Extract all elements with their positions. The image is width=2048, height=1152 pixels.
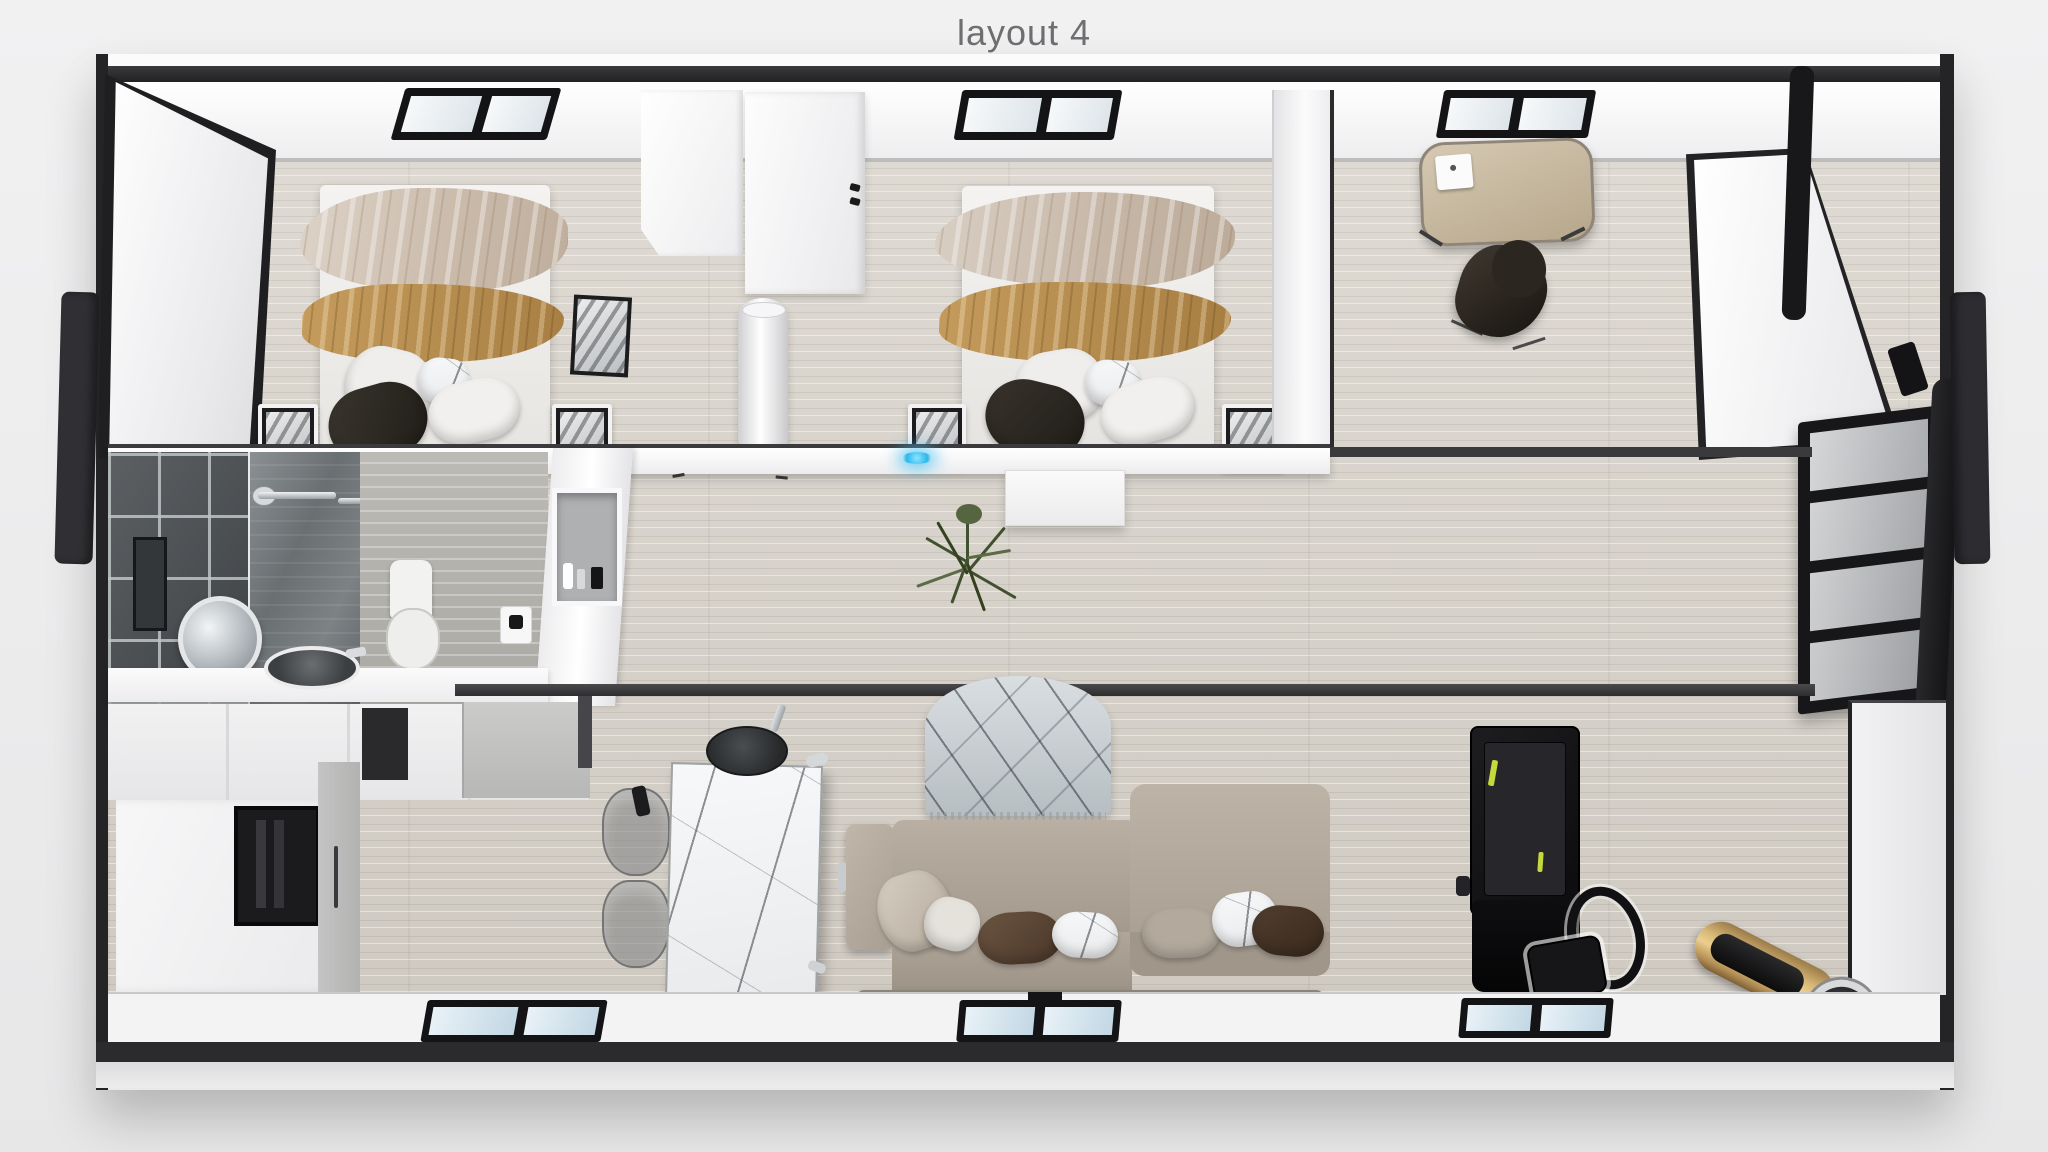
page-title: layout 4 [0,12,2048,54]
window-pane [1466,1005,1532,1031]
cooking-pot [706,726,788,776]
office-divider-ledge [1330,447,1812,457]
chair-leg [1512,337,1545,350]
window-pane [964,1007,1035,1035]
bottom-frame-dark [96,1042,1954,1062]
door-handle [334,846,338,908]
kitchen-island [665,762,823,1002]
top-window-office [1436,90,1596,138]
door-glass-pane [1810,559,1928,631]
pantry-door [318,762,360,992]
wardrobe-a [641,90,743,256]
wall-hook-chrome [838,862,846,892]
window-pane [1043,1007,1114,1035]
gray-cabinet [462,702,590,798]
cushion-taupe [1141,907,1221,960]
roof-edge-dark [96,66,1954,82]
window-pane [401,96,482,132]
console-shelf [1005,470,1125,526]
window-pane [1518,98,1587,130]
window-pane [482,96,551,132]
hanging-plant [922,462,1012,574]
thermostat-screen [509,615,523,629]
door-glass-pane [1810,419,1928,491]
window-pane [1046,98,1113,132]
floorplan-render: layout 4 [0,0,2048,1152]
window-pane [1540,1005,1606,1031]
laptop [1435,153,1474,190]
shower-rail [258,492,336,499]
wall-floor-junction [108,158,1940,162]
toilet [382,560,440,670]
office-chair [1448,238,1558,358]
living-wall-ledge [455,684,1815,696]
cabinet-dark-inset [362,708,408,780]
toiletry-bottle [563,563,573,589]
blanket-cream [935,192,1235,288]
bedroom1-bed [300,180,570,480]
wall-niche-shelf [552,488,622,606]
blanket-gold [302,284,564,362]
window-pane [963,98,1042,132]
door-glass-pane [1810,489,1928,561]
blanket-gold [939,282,1231,362]
black-faucet [591,567,603,589]
bottom-frame-light [96,1062,1954,1088]
vase-rim [742,302,786,318]
right-lower-panel [1848,700,1946,995]
window-pane [429,1007,519,1035]
tile-niche [133,537,167,631]
top-window-bedroom1 [391,88,562,140]
niche-bar [274,820,284,908]
wardrobe-b [745,92,865,294]
plant-center [956,504,982,524]
blanket-cream [300,188,568,292]
window-pane [524,1007,600,1035]
cushion-marble [1051,910,1119,959]
window-pane [1445,98,1514,130]
tall-white-vase [738,298,788,456]
toiletry-bottle [577,569,585,589]
top-window-bedroom2 [954,90,1123,140]
treadmill [1450,718,1630,1008]
cabinet-end-cap [578,690,592,768]
leaning-art [570,295,632,378]
bedroom2-office-wall [1272,90,1334,452]
right-door-jamb [1950,292,1991,565]
bar-stool [602,880,670,968]
door-glass-pane [1810,629,1928,701]
niche-bar [256,820,266,908]
thermostat [500,606,532,644]
fireplace-niche [234,806,320,926]
treadmill-knob [1456,876,1470,896]
marble-rug [925,676,1111,816]
bottom-window-center [956,1000,1122,1042]
toilet-seat [386,608,440,670]
bottom-window-right [1458,998,1613,1038]
left-door-jamb [54,292,99,565]
bottom-window-left [420,1000,607,1042]
wall-hook [776,469,789,479]
plant-sprig [967,549,1011,560]
bedroom2-bed [935,182,1235,482]
office-desk [1418,137,1596,247]
